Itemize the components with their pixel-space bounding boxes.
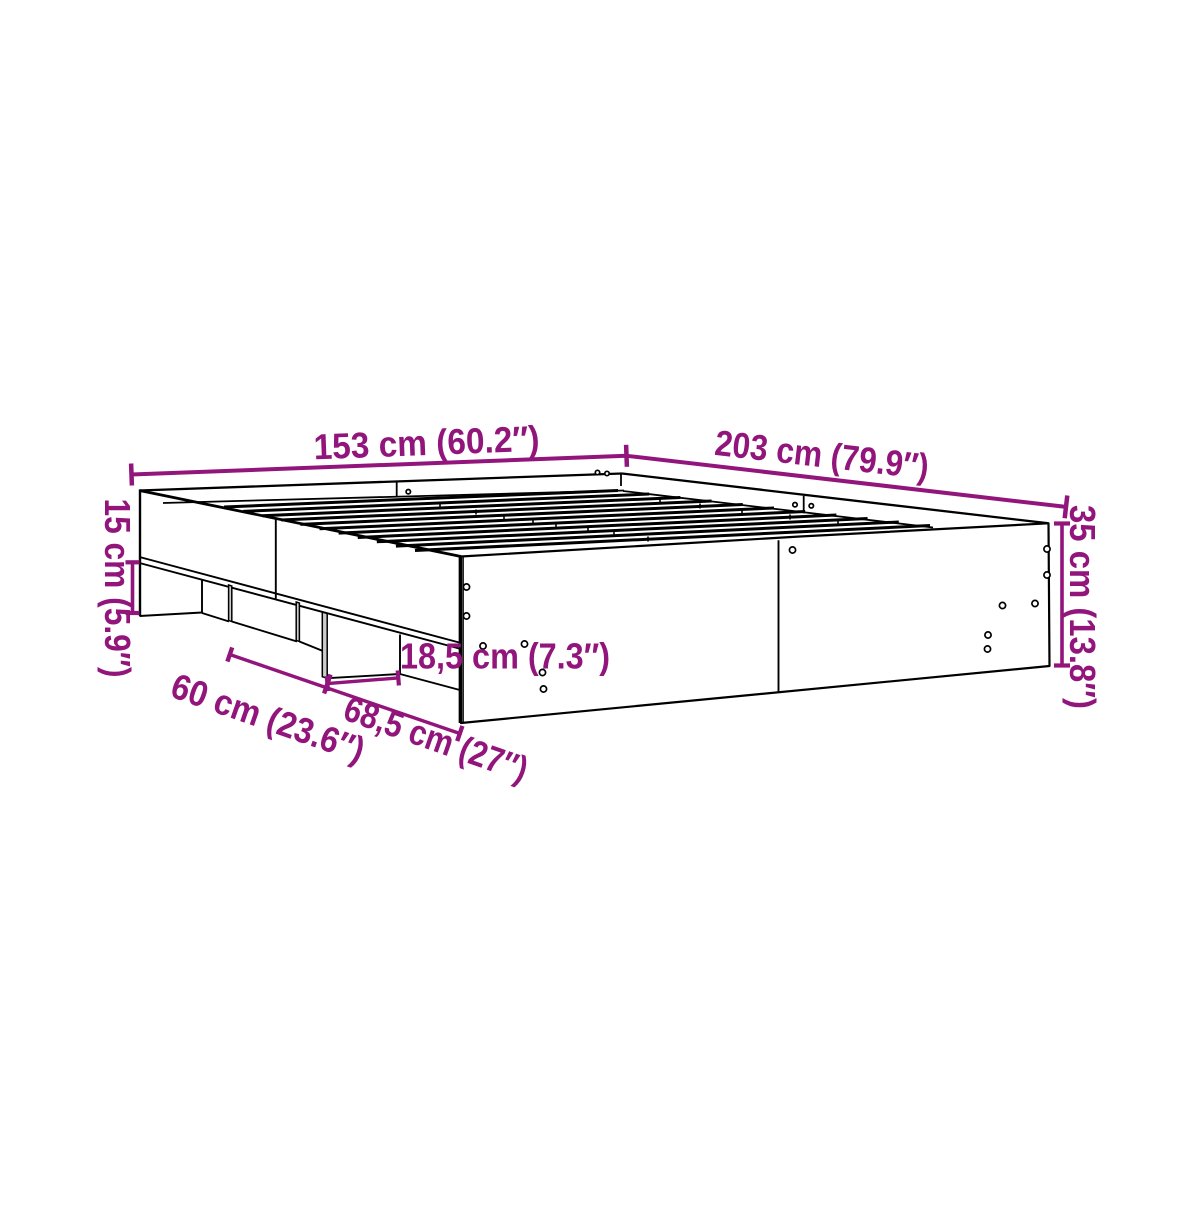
svg-text:35 cm (13.8″): 35 cm (13.8″) xyxy=(1062,505,1103,709)
svg-text:18,5 cm (7.3″): 18,5 cm (7.3″) xyxy=(400,636,610,677)
svg-text:15 cm (5.9″): 15 cm (5.9″) xyxy=(97,499,138,678)
svg-text:153 cm (60.2″): 153 cm (60.2″) xyxy=(313,418,540,468)
